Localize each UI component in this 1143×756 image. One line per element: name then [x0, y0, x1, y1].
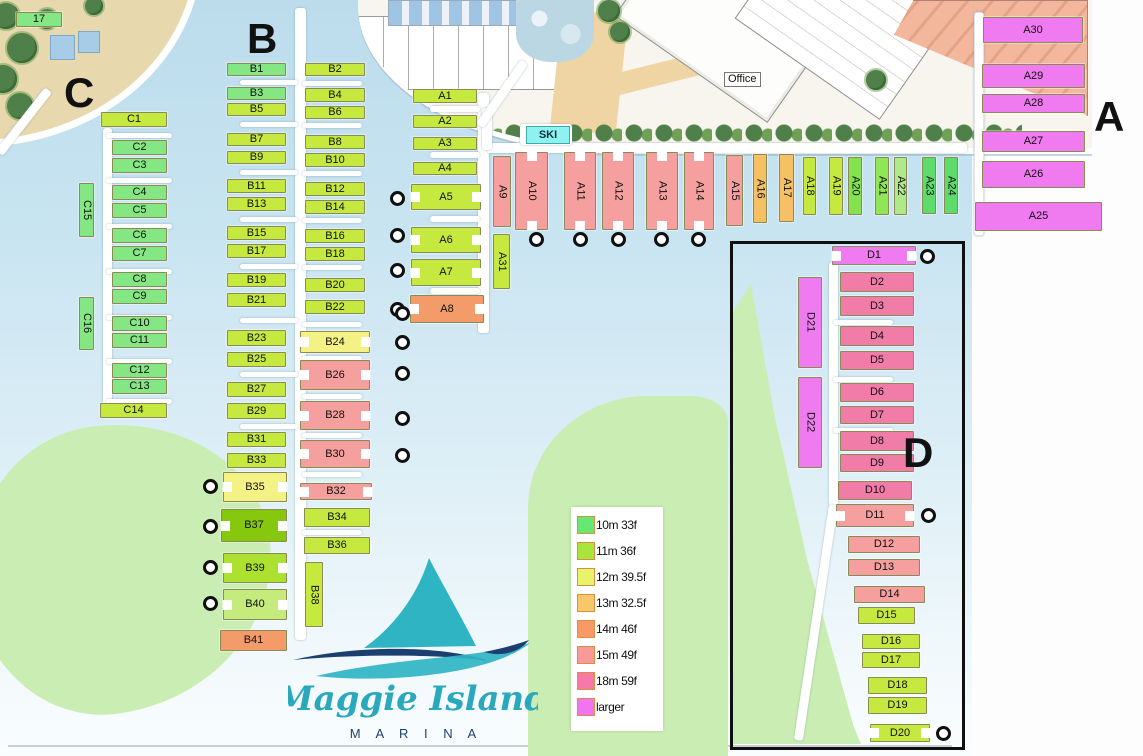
- legend-item: 12m 39.5f: [577, 564, 663, 590]
- berth-A8[interactable]: A8: [410, 295, 484, 323]
- berth-B10[interactable]: B10: [305, 153, 365, 167]
- berth-B1[interactable]: B1: [227, 63, 286, 76]
- berth-D5[interactable]: D5: [840, 351, 914, 370]
- berth-A16[interactable]: A16: [753, 154, 767, 223]
- berth-B13[interactable]: B13: [227, 197, 286, 211]
- finger-dock: [240, 122, 298, 127]
- water-feature: [516, 0, 594, 62]
- finger-dock: [302, 81, 362, 86]
- mooring-circle-icon: [691, 232, 706, 247]
- berth-C7[interactable]: C7: [112, 246, 167, 261]
- legend-swatch: [577, 516, 595, 534]
- mooring-circle-icon: [395, 411, 410, 426]
- mooring-circle-icon: [203, 479, 218, 494]
- finger-dock: [302, 433, 362, 438]
- berth-A4[interactable]: A4: [413, 162, 477, 175]
- legend-swatch: [577, 568, 595, 586]
- finger-dock: [302, 265, 362, 270]
- finger-dock: [240, 264, 298, 269]
- finger-dock: [240, 372, 298, 377]
- berth-B27[interactable]: B27: [227, 382, 286, 397]
- berth-B25[interactable]: B25: [227, 352, 286, 367]
- berth-C4[interactable]: C4: [112, 185, 167, 200]
- finger-dock: [240, 80, 298, 85]
- berth-B23[interactable]: B23: [227, 330, 286, 346]
- berth-A26[interactable]: A26: [982, 161, 1085, 188]
- finger-dock: [106, 133, 172, 138]
- berth-B39[interactable]: B39: [223, 553, 287, 583]
- berth-D2[interactable]: D2: [840, 272, 914, 292]
- finger-dock: [106, 178, 172, 183]
- berth-A27[interactable]: A27: [982, 131, 1085, 152]
- berth-B29[interactable]: B29: [227, 403, 286, 419]
- berth-D17[interactable]: D17: [862, 652, 920, 668]
- finger-dock: [430, 152, 480, 158]
- berth-B32[interactable]: B32: [300, 483, 372, 500]
- berth-C13[interactable]: C13: [112, 379, 167, 394]
- berth-B7[interactable]: B7: [227, 133, 286, 146]
- berth-B35[interactable]: B35: [223, 472, 287, 502]
- mooring-circle-icon: [390, 228, 405, 243]
- finger-dock: [240, 170, 298, 175]
- legend-item: 11m 36f: [577, 538, 663, 564]
- mooring-circle-icon: [529, 232, 544, 247]
- berth-D19[interactable]: D19: [868, 697, 927, 714]
- berth-D6[interactable]: D6: [840, 383, 914, 402]
- pool: [78, 31, 100, 53]
- legend-label: 11m 36f: [596, 544, 636, 558]
- finger-dock: [302, 218, 362, 223]
- finger-dock: [240, 318, 298, 323]
- finger-dock: [240, 217, 298, 222]
- berth-A6[interactable]: A6: [411, 227, 481, 253]
- finger-dock: [302, 322, 362, 327]
- tree-icon: [7, 33, 37, 63]
- mooring-circle-icon: [654, 232, 669, 247]
- legend-label: 14m 46f: [596, 622, 637, 636]
- legend-swatch: [577, 698, 595, 716]
- berth-A31[interactable]: A31: [493, 234, 510, 289]
- berth-D21[interactable]: D21: [798, 277, 822, 368]
- legend-panel: 10m 33f11m 36f12m 39.5f13m 32.5f14m 46f1…: [571, 507, 663, 731]
- section-heading-A: A: [1094, 96, 1124, 138]
- finger-dock: [302, 472, 362, 477]
- berth-A3[interactable]: A3: [413, 137, 477, 150]
- berth-B6[interactable]: B6: [305, 106, 365, 119]
- berth-C5[interactable]: C5: [112, 203, 167, 218]
- berth-A28[interactable]: A28: [982, 94, 1085, 113]
- berth-D18[interactable]: D18: [868, 677, 927, 694]
- berth-C8[interactable]: C8: [112, 272, 167, 287]
- legend-item: 13m 32.5f: [577, 590, 663, 616]
- finger-dock: [302, 530, 362, 535]
- mooring-circle-icon: [936, 726, 951, 741]
- berth-D20[interactable]: D20: [870, 724, 930, 742]
- tree-icon: [85, 0, 103, 15]
- berth-D4[interactable]: D4: [840, 326, 914, 346]
- marina-map: Office SKI 17C1C2C3C4C5C6C7C8C9C10C11C12…: [0, 0, 1143, 756]
- mooring-circle-icon: [921, 508, 936, 523]
- berth-B5[interactable]: B5: [227, 103, 286, 116]
- berth-D15[interactable]: D15: [858, 607, 915, 624]
- legend-label: larger: [596, 700, 624, 714]
- berth-A23[interactable]: A23: [922, 157, 936, 214]
- legend-swatch: [577, 542, 595, 560]
- berth-C6[interactable]: C6: [112, 228, 167, 243]
- legend-item: larger: [577, 694, 663, 720]
- berth-A2[interactable]: A2: [413, 115, 477, 128]
- berth-B40[interactable]: B40: [223, 589, 287, 620]
- berth-A9[interactable]: A9: [493, 156, 511, 227]
- legend-label: 13m 32.5f: [596, 596, 646, 610]
- berth-D22[interactable]: D22: [798, 377, 822, 468]
- berth-A17[interactable]: A17: [779, 154, 794, 222]
- mooring-circle-icon: [203, 519, 218, 534]
- berth-A15[interactable]: A15: [726, 155, 743, 226]
- berth-B17[interactable]: B17: [227, 244, 286, 258]
- berth-C15[interactable]: C15: [79, 183, 94, 237]
- berth-B8[interactable]: B8: [305, 135, 365, 149]
- berth-A12[interactable]: A12: [602, 152, 634, 230]
- tree-icon: [0, 65, 17, 93]
- berth-C2[interactable]: C2: [112, 140, 167, 155]
- legend-label: 10m 33f: [596, 518, 637, 532]
- legend-swatch: [577, 646, 595, 664]
- legend-swatch: [577, 594, 595, 612]
- legend-item: 10m 33f: [577, 512, 663, 538]
- mooring-circle-icon: [203, 560, 218, 575]
- berth-B34[interactable]: B34: [304, 508, 370, 527]
- tree-icon: [610, 22, 630, 42]
- finger-dock: [302, 394, 362, 399]
- berth-B41[interactable]: B41: [220, 630, 287, 651]
- mooring-circle-icon: [390, 263, 405, 278]
- tree-icon: [370, 96, 392, 118]
- legend-swatch: [577, 620, 595, 638]
- berth-B4[interactable]: B4: [305, 88, 365, 102]
- logo-sub-text: M A R I N A: [350, 726, 482, 741]
- berth-C14[interactable]: C14: [100, 403, 167, 418]
- finger-dock: [240, 424, 298, 429]
- section-heading-C: C: [64, 72, 94, 114]
- berth-D3[interactable]: D3: [840, 296, 914, 316]
- berth-B15[interactable]: B15: [227, 226, 286, 240]
- berth-B20[interactable]: B20: [305, 278, 365, 292]
- legend-item: 15m 49f: [577, 642, 663, 668]
- berth-B19[interactable]: B19: [227, 273, 286, 287]
- berth-C1[interactable]: C1: [101, 112, 167, 127]
- berth-B28[interactable]: B28: [300, 401, 370, 430]
- section-heading-D: D: [903, 432, 933, 474]
- berth-A21[interactable]: A21: [875, 157, 889, 215]
- legend-label: 12m 39.5f: [596, 570, 646, 584]
- berth-B14[interactable]: B14: [305, 200, 365, 214]
- legend-swatch: [577, 672, 595, 690]
- berth-C16[interactable]: C16: [79, 297, 94, 350]
- mooring-circle-icon: [395, 335, 410, 350]
- berth-D1[interactable]: D1: [832, 246, 916, 265]
- berth-B31[interactable]: B31: [227, 432, 286, 447]
- berth-A11[interactable]: A11: [564, 152, 596, 230]
- berth-B24[interactable]: B24: [300, 331, 370, 353]
- ski-berth[interactable]: SKI: [526, 126, 570, 144]
- berth-B37[interactable]: B37: [221, 509, 287, 542]
- sail-icon: [364, 558, 476, 648]
- legend-item: 14m 46f: [577, 616, 663, 642]
- berth-B9[interactable]: B9: [227, 151, 286, 164]
- berth-B22[interactable]: B22: [305, 300, 365, 314]
- berth-B26[interactable]: B26: [300, 360, 370, 390]
- office-label: Office: [724, 72, 761, 87]
- mooring-circle-icon: [611, 232, 626, 247]
- berth-A10[interactable]: A10: [515, 152, 548, 230]
- berth-D16[interactable]: D16: [862, 634, 920, 649]
- mooring-circle-icon: [920, 249, 935, 264]
- legend-label: 18m 59f: [596, 674, 637, 688]
- logo-script-text: Maggie Island: [288, 679, 538, 719]
- berth-B2[interactable]: B2: [305, 63, 365, 76]
- berth-A20[interactable]: A20: [848, 157, 862, 215]
- berth-17[interactable]: 17: [16, 12, 62, 27]
- finger-dock: [302, 123, 362, 128]
- berth-A13[interactable]: A13: [646, 152, 678, 230]
- finger-dock: [430, 106, 480, 112]
- mooring-circle-icon: [573, 232, 588, 247]
- berth-B30[interactable]: B30: [300, 440, 370, 468]
- berth-D14[interactable]: D14: [854, 586, 925, 603]
- berth-B12[interactable]: B12: [305, 182, 365, 196]
- berth-A1[interactable]: A1: [413, 89, 477, 103]
- berth-D13[interactable]: D13: [848, 559, 920, 576]
- berth-B3[interactable]: B3: [227, 87, 286, 100]
- berth-C3[interactable]: C3: [112, 158, 167, 173]
- berth-C11[interactable]: C11: [112, 333, 167, 348]
- berth-D12[interactable]: D12: [848, 536, 920, 553]
- berth-A19[interactable]: A19: [829, 157, 843, 215]
- berth-A18[interactable]: A18: [803, 157, 816, 215]
- berth-C10[interactable]: C10: [112, 316, 167, 331]
- finger-dock: [302, 171, 362, 176]
- berth-A7[interactable]: A7: [411, 259, 481, 286]
- berth-A30[interactable]: A30: [983, 17, 1083, 43]
- berth-D10[interactable]: D10: [838, 481, 912, 500]
- berth-C9[interactable]: C9: [112, 289, 167, 304]
- berth-D7[interactable]: D7: [840, 406, 914, 424]
- mooring-circle-icon: [395, 448, 410, 463]
- tree-icon: [598, 0, 620, 22]
- mooring-circle-icon: [390, 191, 405, 206]
- teal-wave-icon: [316, 643, 530, 679]
- finger-dock: [430, 288, 480, 294]
- berth-B33[interactable]: B33: [227, 453, 286, 468]
- section-heading-B: B: [247, 18, 277, 60]
- mooring-circle-icon: [395, 366, 410, 381]
- berth-A14[interactable]: A14: [684, 152, 714, 230]
- berth-A24[interactable]: A24: [944, 157, 958, 214]
- berth-B11[interactable]: B11: [227, 179, 286, 193]
- berth-A5[interactable]: A5: [411, 184, 481, 210]
- mooring-circle-icon: [395, 306, 410, 321]
- berth-A22[interactable]: A22: [894, 157, 907, 215]
- berth-B16[interactable]: B16: [305, 229, 365, 243]
- pool: [50, 35, 75, 60]
- berth-B36[interactable]: B36: [304, 537, 370, 554]
- berth-A25[interactable]: A25: [975, 202, 1102, 231]
- berth-A29[interactable]: A29: [982, 64, 1085, 88]
- marina-logo: Maggie Island M A R I N A: [288, 556, 538, 752]
- berth-C12[interactable]: C12: [112, 363, 167, 378]
- berth-B18[interactable]: B18: [305, 247, 365, 261]
- legend-item: 18m 59f: [577, 668, 663, 694]
- tree-icon: [866, 70, 886, 90]
- mooring-circle-icon: [203, 596, 218, 611]
- finger-dock: [430, 216, 480, 222]
- berth-B21[interactable]: B21: [227, 293, 286, 307]
- berth-D11[interactable]: D11: [836, 504, 914, 527]
- legend-label: 15m 49f: [596, 648, 637, 662]
